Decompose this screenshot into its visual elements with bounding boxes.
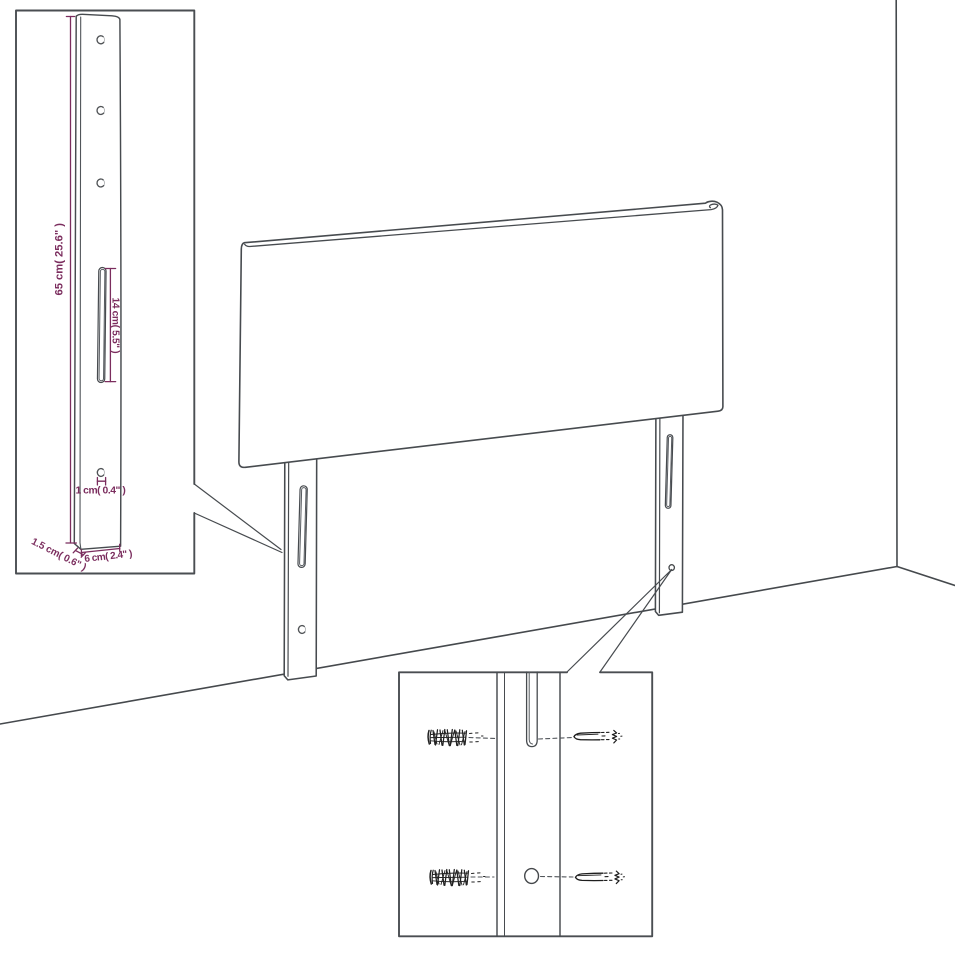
svg-text:65 cm( 25.6" ): 65 cm( 25.6" ) — [54, 223, 66, 296]
svg-text:14 cm( 5.5" ): 14 cm( 5.5" ) — [110, 298, 121, 354]
svg-text:1 cm( 0.4" ): 1 cm( 0.4" ) — [76, 485, 126, 496]
